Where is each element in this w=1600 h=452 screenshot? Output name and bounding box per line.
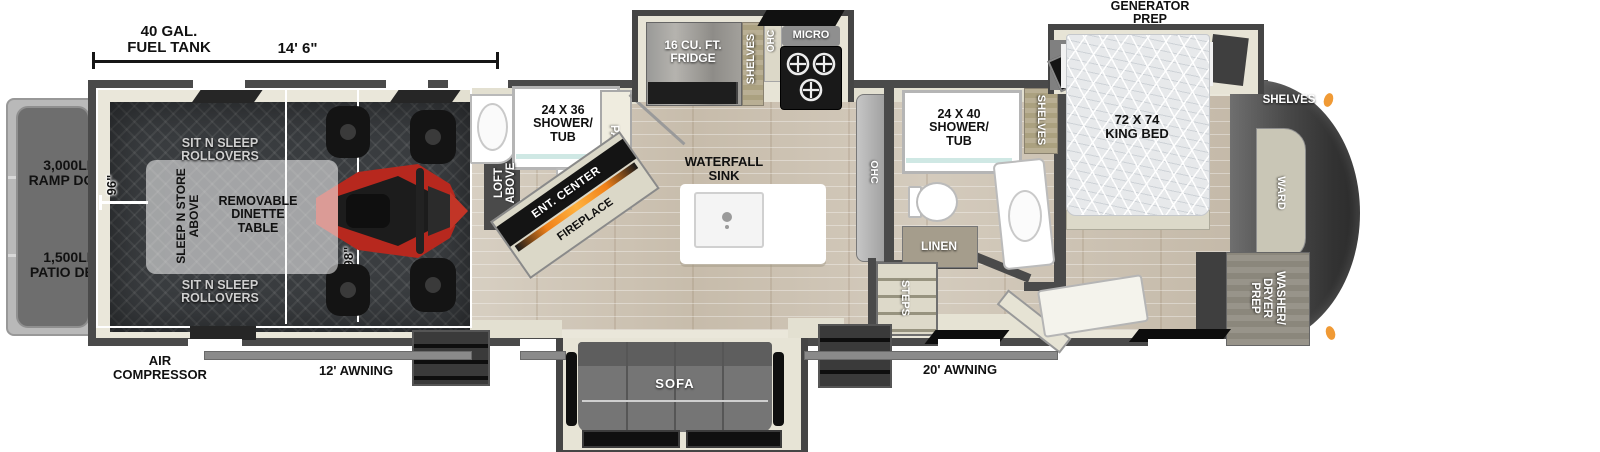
patio-deck: [16, 106, 90, 328]
linen-label: LINEN: [902, 236, 976, 256]
window-gap: [193, 80, 245, 88]
rv-floorplan: 40 GAL. FUEL TANK 14' 6" 3,000LB. RAMP D…: [0, 0, 1600, 452]
air-compressor-label: AIR COMPRESSOR: [100, 352, 220, 384]
window-gap: [1148, 339, 1226, 347]
slide-window: [773, 352, 784, 426]
rollovers-top-label: SIT N SLEEP ROLLOVERS: [158, 134, 282, 166]
generator-prep-label: GENERATOR PREP: [1090, 0, 1210, 26]
rear-awning-rail-segment: [520, 351, 566, 360]
refrigerator-base: [648, 82, 738, 104]
sofa-seat-edge: [582, 400, 768, 402]
steps-side-wall: [868, 258, 876, 334]
rollovers-bottom-label: SIT N SLEEP ROLLOVERS: [158, 276, 282, 308]
main-awning-rail: [804, 351, 1058, 360]
vanity-basin: [1008, 190, 1042, 242]
waterfall-sink-label: WATERFALL SINK: [664, 154, 784, 184]
bath-shelves-label: SHELVES: [1031, 85, 1049, 155]
burners-icon: [783, 49, 839, 107]
sofa-label: SOFA: [625, 374, 725, 394]
counter-ohc-label: OHC: [863, 145, 883, 199]
garage-width-label: 96": [101, 167, 123, 203]
entry-door-gap: [938, 339, 1000, 347]
range-hood: [757, 10, 844, 26]
window-gap: [188, 339, 242, 347]
marker-light-icon: [1322, 92, 1335, 108]
roof-vent: [191, 90, 262, 103]
dimension-tick-left: [92, 52, 95, 69]
washer-dryer-label: WASHER/ DRYER PREP: [1246, 255, 1288, 341]
slide-storage-mat: [582, 430, 680, 448]
length-label: 14' 6": [240, 40, 355, 58]
steps-label: STEPS: [895, 263, 913, 333]
bath-toilet-bowl: [916, 182, 958, 222]
nightstand-right: [1207, 34, 1249, 86]
micro-label: MICRO: [782, 28, 840, 44]
king-bed-label: 72 X 74 KING BED: [1082, 112, 1192, 142]
dinette-label: REMOVABLE DINETTE TABLE: [210, 190, 306, 240]
cooktop: [780, 46, 842, 110]
slide-window: [566, 352, 577, 426]
kitchen-shelves-label: SHELVES: [743, 24, 761, 94]
main-awning-label: 20' AWNING: [900, 361, 1020, 379]
kitchen-ohc-label: OHC: [763, 26, 781, 56]
slide-storage-mat: [686, 430, 782, 448]
garage-floor-vent: [190, 326, 256, 340]
dimension-tick-right: [496, 52, 499, 69]
fuel-tank-label: 40 GAL. FUEL TANK: [108, 24, 230, 56]
sleep-n-store-label: SLEEP N STORE ABOVE: [174, 156, 202, 276]
wardrobe-label: WARD: [1271, 159, 1289, 227]
faucet-icon: [722, 212, 732, 222]
main-shower-label: 24 X 40 SHOWER/ TUB: [904, 96, 1014, 160]
front-shelves-label: SHELVES: [1258, 92, 1320, 108]
window-gap: [386, 80, 428, 88]
marker-light-icon: [1324, 325, 1337, 341]
roof-vent: [389, 90, 460, 103]
fridge-label: 16 CU. FT. FRIDGE: [646, 36, 740, 68]
window-gap: [448, 80, 508, 88]
rear-awning-label: 12' AWNING: [300, 362, 412, 380]
rear-awning-rail: [204, 351, 472, 360]
length-dimension-line: [93, 60, 498, 63]
rear-bath-sink-basin: [477, 103, 508, 151]
bath-wall-left: [884, 88, 894, 266]
